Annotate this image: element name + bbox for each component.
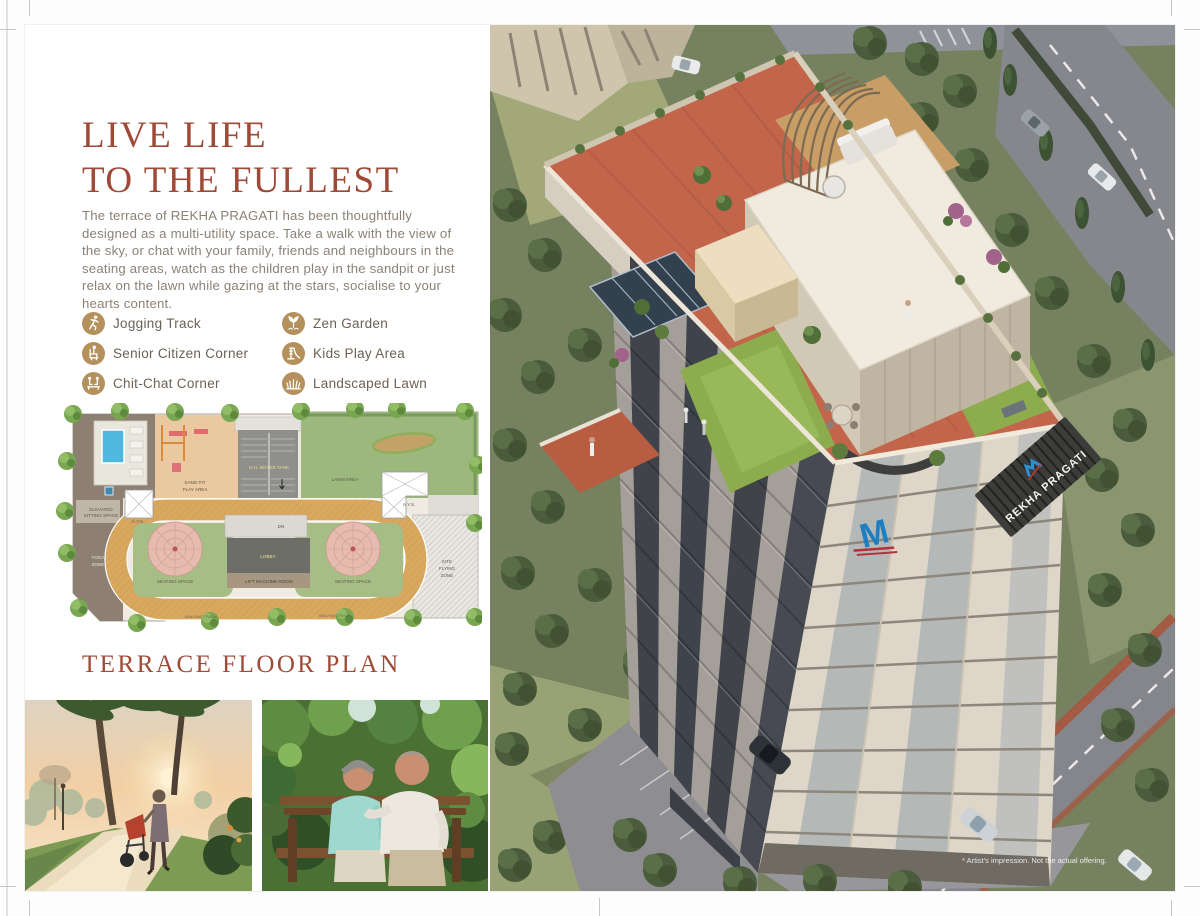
plan-label-kite-3: ZONE: [441, 573, 454, 578]
amenity-jogging-track: Jogging Track: [82, 312, 282, 335]
amenity-label: Chit-Chat Corner: [113, 376, 220, 391]
plan-label-dn: DN: [278, 524, 285, 529]
intro-paragraph: The terrace of REKHA PRAGATI has been th…: [82, 207, 457, 313]
plan-label-yoga-1: YOGA: [91, 555, 105, 560]
plan-drawing: ELEVATED SITTING SPACE A.Y.S. SAND PIT P…: [56, 403, 482, 632]
scan-edge-shadow: [6, 0, 8, 916]
amenity-zen-garden: Zen Garden: [282, 312, 472, 335]
plan-label-track-left: WALKING TRACK: [185, 614, 217, 619]
building-aerial-render: REKHA PRAGATI M: [490, 25, 1175, 891]
amenity-chit-chat-corner: Chit-Chat Corner: [82, 372, 282, 395]
photo-walkway-stroller: [25, 700, 252, 891]
amenities-list: Jogging Track Senior Citizen Corner: [82, 308, 472, 398]
plan-label-lobby: LOBBY: [260, 554, 275, 559]
chit-chat-icon: [82, 372, 105, 395]
amenity-label: Zen Garden: [313, 316, 388, 331]
plan-label-seating-left: SEATING SPACE: [157, 579, 193, 584]
kids-play-icon: [282, 342, 305, 365]
seating-mandala-right: [326, 522, 380, 576]
plan-label-lift: LIFT MACHINE ROOM: [245, 579, 293, 584]
senior-citizen-icon: [82, 342, 105, 365]
plan-label-sand-2: PLAY AREA: [183, 487, 209, 492]
amenity-label: Landscaped Lawn: [313, 376, 427, 391]
amenity-label: Jogging Track: [113, 316, 201, 331]
plan-label-sand-1: SAND PIT: [184, 480, 205, 485]
page-title-line1: LIVE LIFE: [82, 115, 267, 156]
terrace-floor-plan: ELEVATED SITTING SPACE A.Y.S. SAND PIT P…: [45, 403, 482, 632]
plan-label-kite-2: FLYING: [439, 566, 456, 571]
photo-senior-couple: [262, 700, 488, 891]
disclaimer-text: * Artist's impression. Not the actual of…: [962, 856, 1107, 865]
plan-label-seating-right: SEATING SPACE: [335, 579, 371, 584]
plan-title: TERRACE FLOOR PLAN: [82, 651, 401, 679]
plan-label-ays-left: A.Y.S.: [132, 519, 144, 524]
seating-mandala-left: [148, 522, 202, 576]
plan-label-kite-1: KITE: [442, 559, 452, 564]
plan-label-elevated-1: ELEVATED: [89, 507, 113, 512]
plan-label-ays-right: A.Y.S.: [403, 502, 415, 507]
zen-garden-icon: [282, 312, 305, 335]
amenity-senior-citizen-corner: Senior Citizen Corner: [82, 342, 282, 365]
amenity-label: Senior Citizen Corner: [113, 346, 248, 361]
plan-label-track-right: WALKING TRACK: [319, 613, 351, 618]
plan-label-tank: O.H. WATER TANK: [249, 465, 290, 470]
plan-label-elevated-2: SITTING SPACE: [84, 513, 119, 518]
landscaped-lawn-icon: [282, 372, 305, 395]
plan-label-lawn: LAWN AREA: [332, 477, 360, 482]
plan-label-yoga-2: ZONE: [92, 562, 105, 567]
amenity-landscaped-lawn: Landscaped Lawn: [282, 372, 472, 395]
brochure-page: LIVE LIFE TO THE FULLEST The terrace of …: [25, 25, 1175, 891]
left-column: LIVE LIFE TO THE FULLEST The terrace of …: [25, 25, 490, 891]
amenity-kids-play-area: Kids Play Area: [282, 342, 472, 365]
page-title-line2: TO THE FULLEST: [82, 160, 400, 201]
page-title: LIVE LIFE TO THE FULLEST: [82, 113, 400, 203]
amenity-label: Kids Play Area: [313, 346, 405, 361]
jogging-icon: [82, 312, 105, 335]
